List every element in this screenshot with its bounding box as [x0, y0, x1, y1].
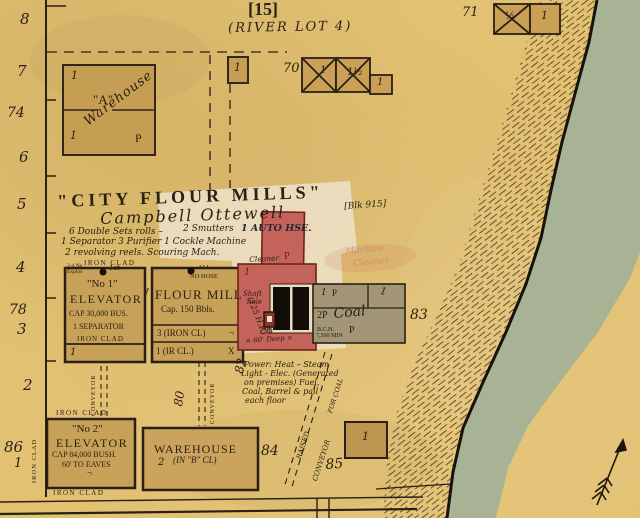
warehouse-a-floor-bottom: 1	[70, 130, 77, 141]
elevator1-name-2: ELEVATOR	[70, 293, 142, 305]
building-70-floor3: 1	[377, 78, 383, 88]
warehouse-b-floors: 2	[158, 458, 164, 468]
lot-number-74: 74	[7, 106, 25, 120]
building-71-floor2: 1	[541, 10, 548, 21]
lot-number-6: 6	[19, 150, 29, 165]
coal-shed-number-83: 83	[410, 308, 428, 322]
flour-mill-row1: 3 (IRON CL)	[157, 329, 206, 338]
warehouse-a-p: P	[135, 132, 142, 144]
mill-note-1b: 2 Smutters	[183, 225, 234, 234]
flour-mill-name: FLOUR MILL	[155, 288, 243, 301]
coal-shed-cap: 7,500 MIN	[316, 333, 343, 339]
building-70-floor1: 1	[320, 66, 326, 76]
lot-number-3: 3	[17, 322, 27, 337]
lot-number-86: 86	[4, 440, 23, 455]
lot-number-80: 80	[172, 390, 186, 407]
flour-mill-x: X	[228, 347, 235, 356]
coal-shed-p: P	[349, 326, 355, 336]
elevator1-floor: 1	[70, 348, 76, 358]
lot-number-78: 78	[9, 303, 27, 317]
alarm-dot-icon	[100, 269, 107, 276]
elevator2-name-2: ELEVATOR	[56, 437, 128, 449]
elevator2-capacity: CAP 84,000 BUSH.	[52, 451, 117, 459]
power-note-line3: on premises) Fuel,	[244, 379, 319, 387]
auto-house-p: P	[284, 252, 290, 262]
elevator1-capacity: CAP 30,000 BUS.	[69, 310, 128, 318]
lot-number-7: 7	[17, 64, 27, 79]
mill-note-2: 1 Separator 3 Purifier 1 Cockle Machine	[61, 238, 246, 247]
elevator1-explos-2: Explos	[67, 270, 82, 276]
elevator1-iron-clad: IRON CLAD	[77, 336, 124, 343]
elevator2-iron-left: IRON CLAD	[32, 439, 39, 483]
sheet-number: [15]	[248, 0, 278, 18]
lot-number-4: 4	[16, 260, 26, 275]
power-note-line2: Light - Elec. (Generated	[241, 370, 339, 378]
elevator2-mark: ¬	[87, 469, 92, 478]
auto-house-label: 1 AUTO HSE.	[241, 224, 312, 234]
building-85-floor: 1	[362, 431, 369, 442]
warehouse-b-name: WAREHOUSE	[154, 443, 237, 455]
engine-block	[293, 287, 310, 330]
coal-shed-cell1-floor: 1	[321, 289, 327, 298]
coal-shed-cell1-p: P	[332, 289, 337, 298]
building-71-number: 71	[462, 6, 479, 19]
elevator1-separator: 1 SEPARATOR	[73, 323, 124, 331]
conveyor-mid-label: CONVEYOR	[210, 383, 216, 424]
river-lot-label: (RIVER LOT 4)	[228, 20, 352, 35]
building-70-floor2: 1½	[347, 68, 363, 78]
cleaner-label: Cleaner	[249, 254, 279, 263]
elevator2-iron-top: IRON CLAD	[56, 410, 107, 417]
flour-mill-row2: 1 (IR CL.)	[156, 347, 194, 356]
red-mill-floor: 1	[244, 268, 250, 278]
elevator1-name-1: "No 1"	[87, 279, 118, 290]
building-85-number: 85	[325, 457, 344, 472]
warehouse-b-number-84: 84	[261, 444, 279, 458]
sanborn-map: [15] (RIVER LOT 4) 8 7 74 6 5 4 78 3 2 8…	[0, 0, 640, 518]
coal-shed-2p: 2P	[317, 311, 328, 321]
building-71-symbol	[494, 4, 560, 34]
flour-mill-capacity: Cap. 150 Bbls.	[161, 305, 215, 314]
power-note-line1: Power: Heat – Steam	[244, 361, 329, 369]
warehouse-a-floor-top: 1	[71, 70, 78, 81]
flour-mill-all: ALL	[198, 265, 211, 272]
flour-mill-mark: ¬	[229, 329, 234, 338]
power-note-line4: Coal, Barrel & pail	[242, 388, 318, 396]
mill-note-3: 2 revolving reels. Scouring Mach.	[65, 249, 219, 258]
building-70-number: 70	[283, 62, 300, 75]
elevator1-first: 1st	[109, 265, 120, 272]
building-71-floor1: ½	[505, 12, 515, 22]
small-building-floor: 1	[234, 62, 241, 73]
lot-number-1: 1	[14, 457, 22, 470]
lot-number-2: 2	[23, 378, 33, 393]
elevator2-iron-bottom: IRON CLAD	[53, 490, 104, 497]
power-note-line5: each floor	[245, 397, 285, 405]
lot-number-8: 8	[20, 12, 30, 27]
elevator2-name-1: "No 2"	[72, 424, 103, 435]
lot-number-5: 5	[17, 197, 27, 212]
coal-shed-coal: Coal	[333, 304, 366, 321]
warehouse-b-class: (IN "B" CL)	[173, 456, 217, 465]
north-arrow-icon	[592, 440, 626, 505]
flour-mill-no-hose: NO HOSE	[190, 274, 218, 281]
mill-note-1: 6 Double Sets rolls –	[69, 228, 163, 237]
